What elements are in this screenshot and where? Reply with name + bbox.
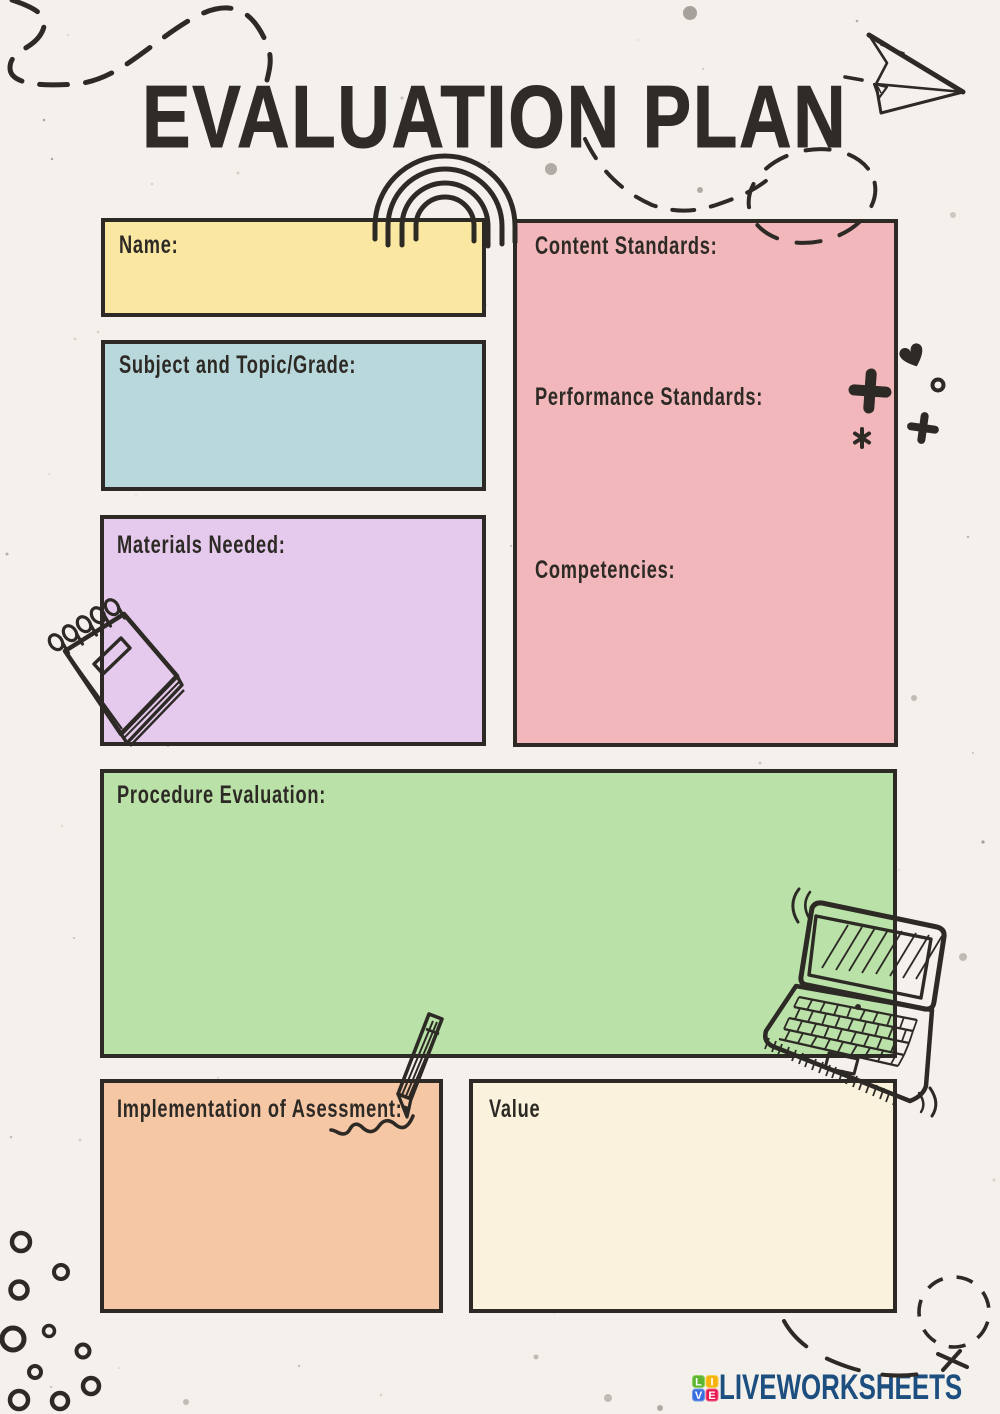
svg-text:E: E [708,1390,715,1402]
svg-text:V: V [695,1390,703,1402]
svg-text:I: I [710,1377,713,1389]
svg-text:L: L [695,1377,702,1389]
